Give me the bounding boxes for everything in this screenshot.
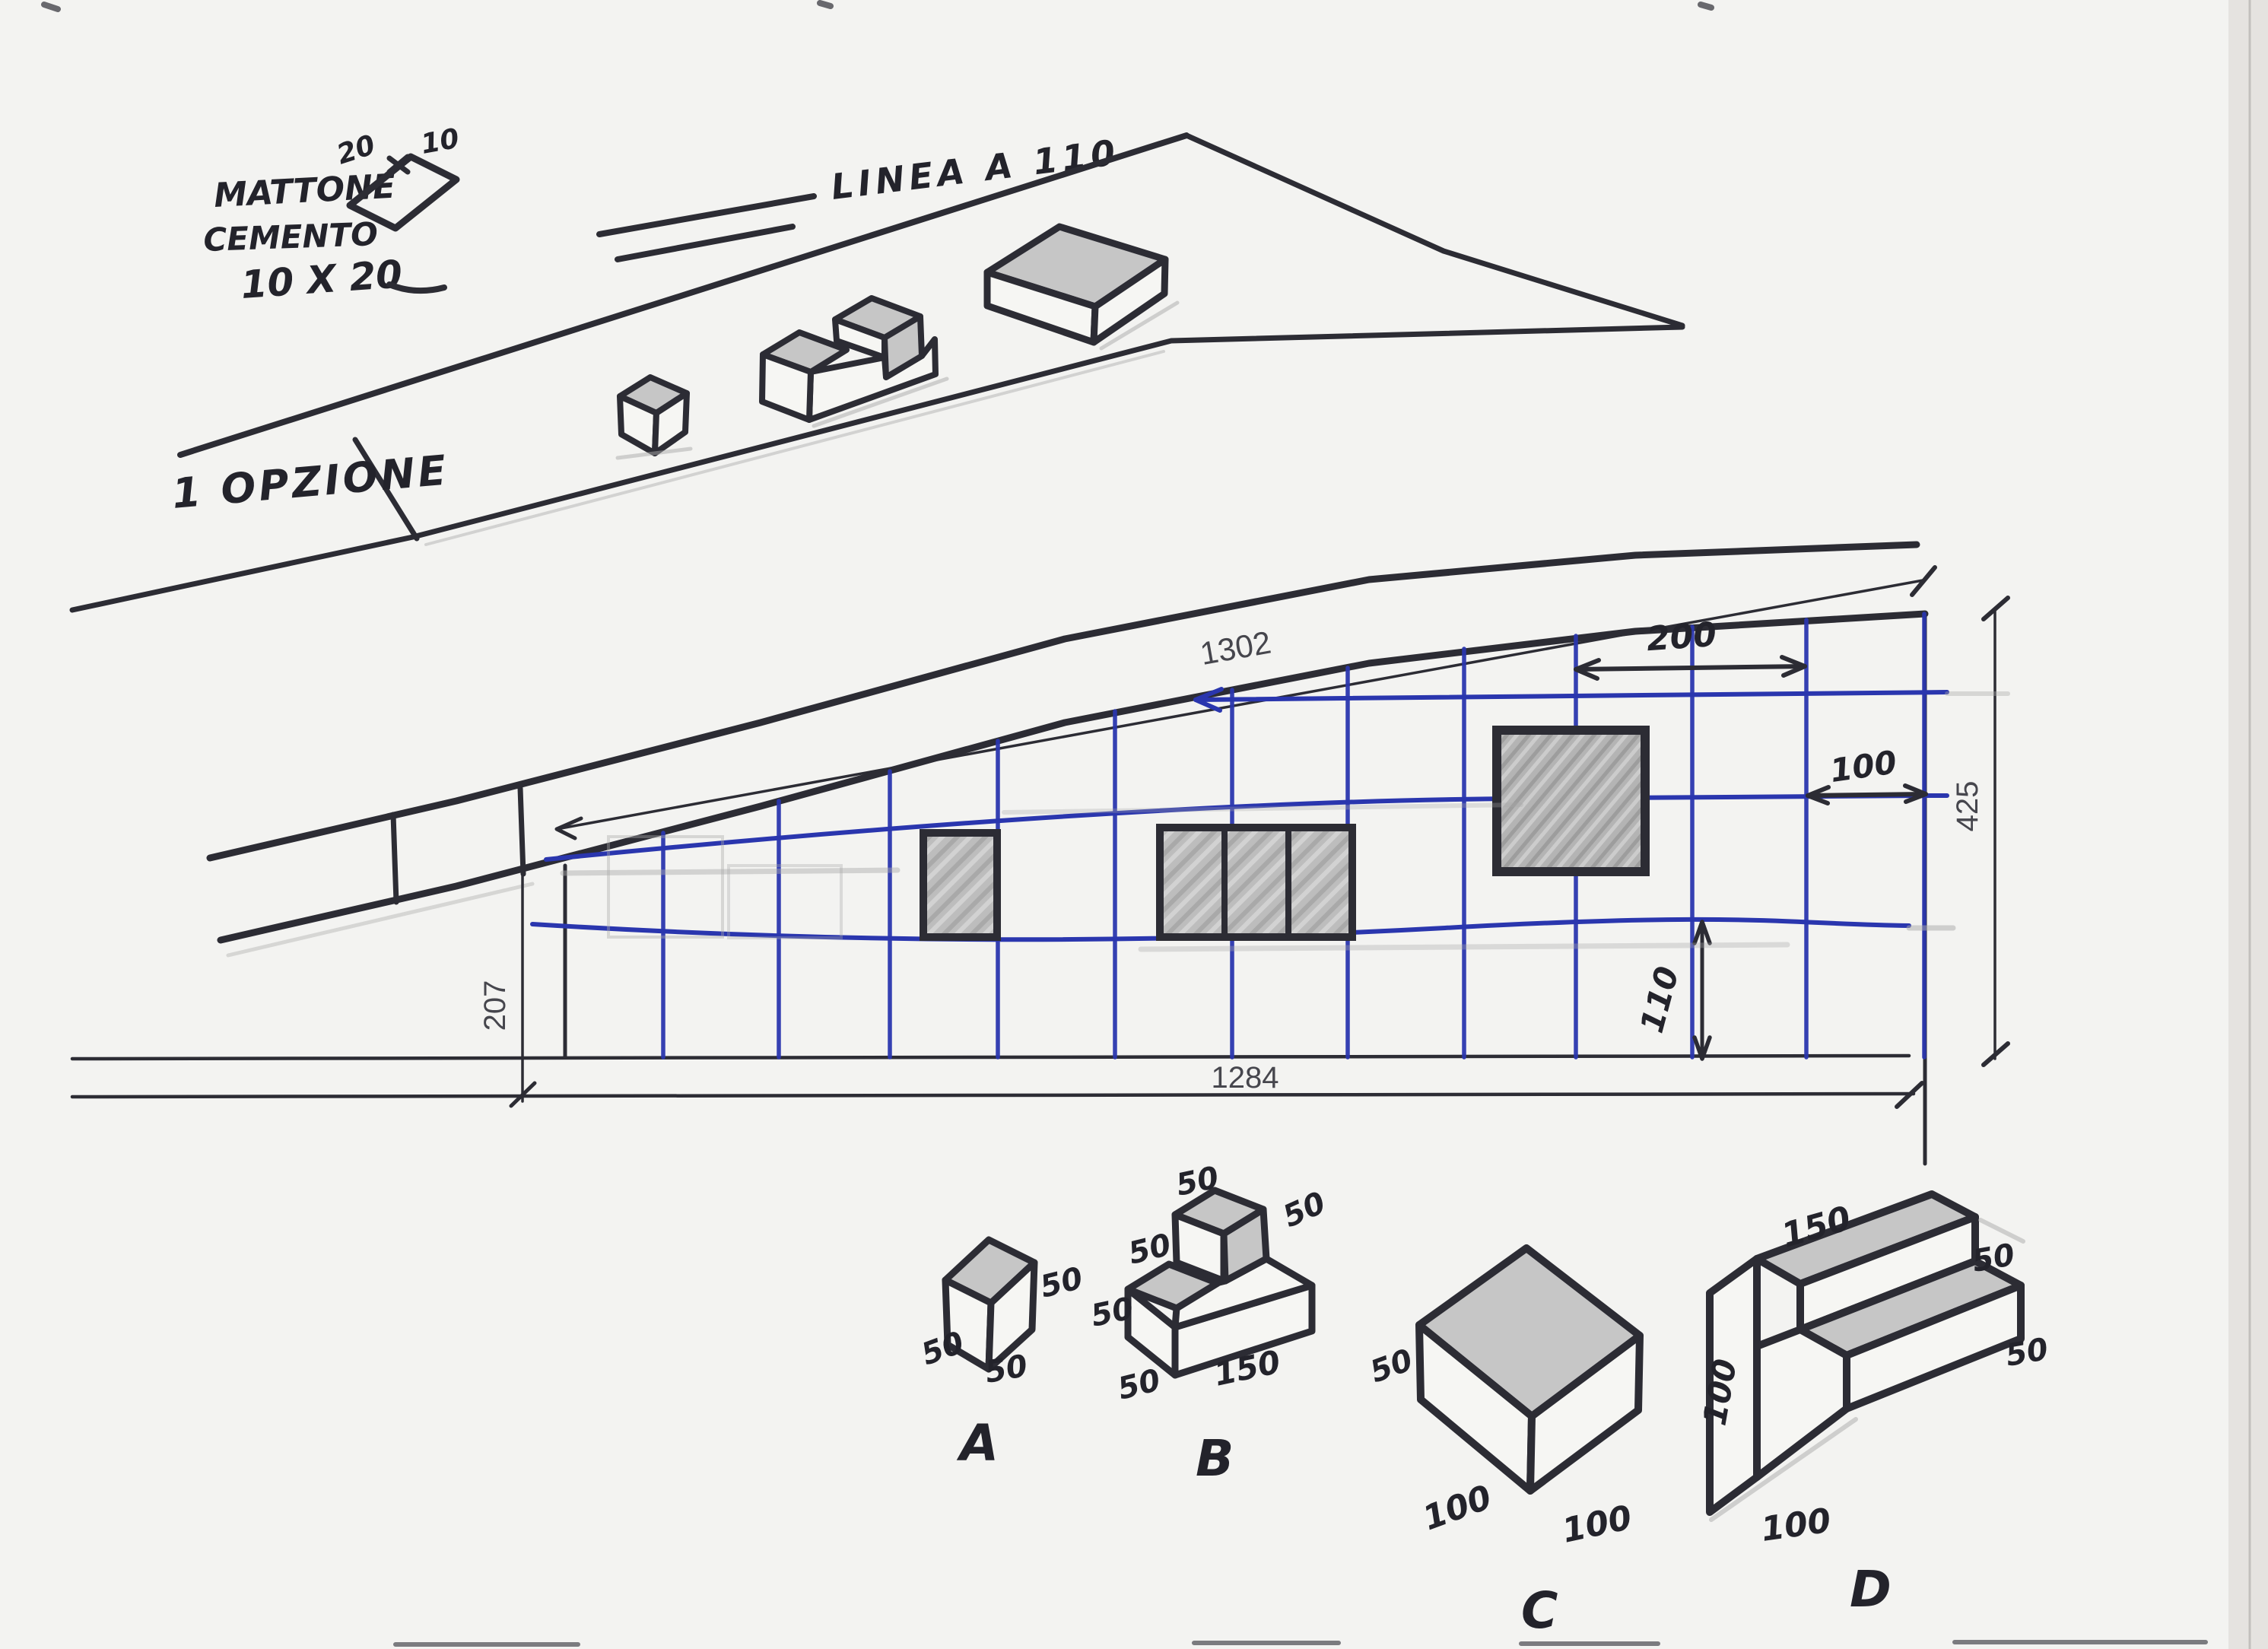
- ground-line-upper: [72, 1056, 1909, 1059]
- scanned-sketch-page: MATTONE CEMENTO 10 X 20 20 10 LINEA A 11…: [0, 0, 2268, 1649]
- dim-207-value: 207: [478, 980, 512, 1031]
- block-b-label: B: [1196, 1429, 1234, 1488]
- module-single: [923, 833, 997, 937]
- block-b: 50 50 50 50 50 150 B: [1088, 1160, 1331, 1488]
- block-b-dim-top-right: 50: [1278, 1185, 1331, 1234]
- dim-425-value: 425: [1951, 781, 1984, 832]
- block-c: 50 100 100 C: [1366, 1248, 1640, 1640]
- block-d-dim-right: 50: [2003, 1332, 2051, 1374]
- block-a-dim-right: 50: [1037, 1261, 1086, 1305]
- paper-right-shadow: [2228, 0, 2268, 1649]
- block-c-dim-bottom-right: 100: [1559, 1498, 1635, 1551]
- pencil-ghost-module-2: [729, 866, 841, 938]
- block-c-dim-bottom-left: 100: [1418, 1478, 1497, 1538]
- scene-block-cube: [618, 377, 691, 458]
- sketch-canvas: MATTONE CEMENTO 10 X 20 20 10 LINEA A 11…: [0, 0, 2268, 1649]
- material-annotation: MATTONE CEMENTO 10 X 20 20 10: [203, 123, 462, 307]
- linea-underline-2: [618, 227, 793, 259]
- block-d-label: D: [1850, 1560, 1892, 1619]
- module-large: [1497, 730, 1645, 872]
- scan-top-specks: [44, 3, 1711, 9]
- dim-100-line: [1808, 794, 1926, 796]
- street-band: [210, 545, 1925, 955]
- dimension-110: 110: [1633, 922, 1710, 1059]
- street-tick-2: [520, 788, 523, 874]
- block-b-dim-bottom-left: 50: [1114, 1363, 1164, 1407]
- dimension-425: 425: [1951, 598, 2008, 1065]
- block-studies: 50 50 50 A 50 50 50 50 50 150 B 50 1: [917, 1160, 2051, 1640]
- brick-height-label: 10: [418, 123, 461, 160]
- dim-1302-arrow: [557, 818, 581, 838]
- dim-110-value: 110: [1633, 963, 1686, 1037]
- dim-1302-line: [557, 580, 1923, 829]
- module-large-rect: [1497, 730, 1645, 872]
- ground-lines: 1284: [72, 1056, 1922, 1107]
- size-arrow-squiggle: [389, 284, 444, 291]
- dim-1302-value: 1302: [1197, 624, 1273, 672]
- block-a: 50 50 50 A: [917, 1240, 1087, 1473]
- block-d-dim-top-right: 50: [1970, 1238, 2018, 1279]
- material-type-label: CEMENTO: [203, 215, 379, 259]
- perspective-sketch: MATTONE CEMENTO 10 X 20 20 10 LINEA A 11…: [72, 123, 1682, 610]
- block-c-label: C: [1521, 1581, 1558, 1640]
- street-pencil-ghost: [228, 884, 532, 955]
- dimension-100: 100: [1808, 743, 1926, 803]
- block-c-dim-left: 50: [1366, 1342, 1418, 1390]
- street-lower-line: [221, 614, 1925, 940]
- ground-line-lower: [72, 1094, 1914, 1097]
- module-single-rect: [923, 833, 997, 937]
- scan-bottom-marks: [395, 1642, 2206, 1644]
- brick-width-label: 20: [333, 129, 379, 170]
- scene-block-slab: [987, 227, 1177, 348]
- block-a-dim-bottom: 50: [983, 1349, 1031, 1390]
- terrain-descending-line: [1186, 135, 1682, 326]
- module-triple-rect: [1160, 828, 1352, 937]
- material-size-label: 10 X 20: [240, 252, 404, 307]
- dim-1284-value: 1284: [1212, 1061, 1279, 1095]
- dim-100-value: 100: [1828, 743, 1899, 790]
- block-d: 150 50 100 50 100 D: [1696, 1194, 2051, 1619]
- block-d-dim-bottom: 100: [1758, 1501, 1833, 1549]
- dim-200-value: 200: [1645, 615, 1717, 659]
- dim-200-line: [1576, 666, 1805, 669]
- street-tick-1: [393, 815, 396, 902]
- block-a-label: A: [956, 1414, 999, 1473]
- elevation-drawing: 1302 1284 207 425: [72, 545, 2008, 1164]
- dimension-207: 207: [478, 874, 523, 1101]
- pencil-smudge-1: [563, 870, 897, 873]
- option-label: 1 OPZIONE: [170, 446, 451, 518]
- module-triple: [1160, 828, 1352, 937]
